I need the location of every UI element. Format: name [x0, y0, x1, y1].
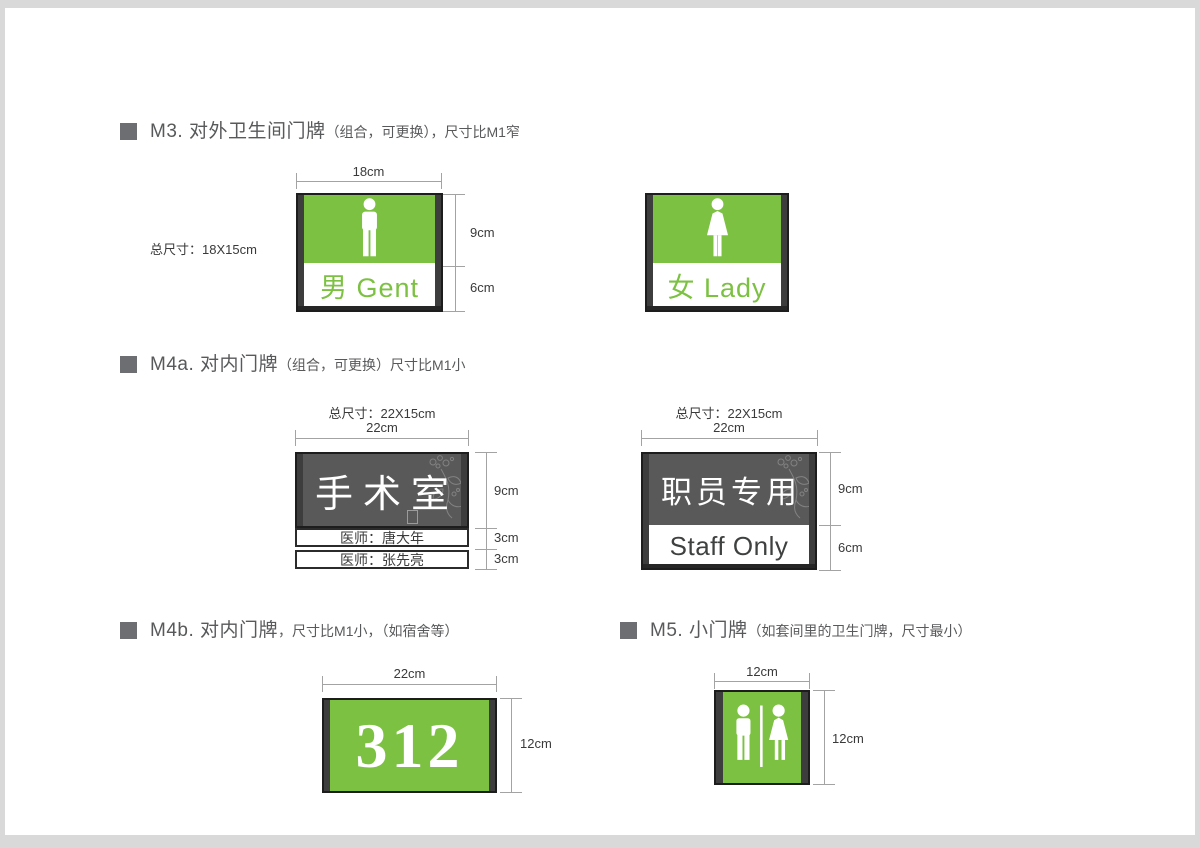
staff-band-text: Staff Only — [670, 531, 789, 562]
doctor-name-1: 医师：唐大年 — [340, 528, 424, 548]
dimension-tick — [443, 194, 465, 195]
m3-bullet-icon — [120, 123, 137, 140]
m4b-section-title: M4b. 对内门牌，尺寸比M1小，（如宿舍等） — [150, 620, 458, 643]
room-number-text: 312 — [356, 709, 464, 783]
small-sign-pictogram-panel — [723, 692, 801, 783]
dimension-tick — [813, 784, 835, 785]
m3-width-dim-label: 18cm — [296, 164, 441, 179]
sign-right-rail — [435, 195, 441, 310]
dimension-tick — [296, 173, 297, 189]
sign-right-rail — [809, 454, 815, 568]
doctor-name-slat: 医师：唐大年 — [295, 528, 469, 547]
dimension-line — [296, 181, 441, 182]
dimension-tick — [813, 690, 835, 691]
dimension-tick — [441, 173, 442, 189]
staff-sign-label-band: Staff Only — [649, 528, 809, 564]
sign-right-rail — [801, 692, 808, 783]
m4b-title-sub: ，尺寸比M1小，（如宿舍等） — [278, 623, 458, 639]
m4b-bullet-icon — [120, 622, 137, 639]
dimension-tick — [817, 430, 818, 446]
m4a-title-sub: （组合，可更换）尺寸比M1小 — [278, 357, 465, 373]
small-sign-height-dim-label: 12cm — [832, 731, 864, 746]
dimension-tick — [819, 452, 841, 453]
dimension-tick — [500, 698, 522, 699]
surgery-slat1-dim-label: 3cm — [494, 530, 519, 545]
dimension-line — [295, 438, 469, 439]
male-female-icon — [730, 704, 794, 771]
room-number-sign: 312 — [322, 698, 497, 793]
small-toilet-sign — [714, 690, 810, 785]
dimension-tick — [819, 525, 841, 526]
dimension-tick — [475, 569, 497, 570]
surgery-panel-face: 手术室 — [303, 454, 461, 526]
m5-bullet-icon — [620, 622, 637, 639]
male-toilet-sign: 男 Gent — [296, 193, 443, 312]
male-sign-pictogram-panel — [304, 195, 435, 263]
doctor-name-slat: 医师：张先亮 — [295, 550, 469, 569]
sign-right-rail — [489, 700, 495, 791]
sign-left-rail — [716, 692, 723, 783]
female-sign-label: 女 Lady — [667, 266, 766, 305]
signage-spec-sheet: M3. 对外卫生间门牌（组合，可更换），尺寸比M1窄 总尺寸：18X15cm 1… — [0, 0, 1200, 848]
m5-section-title: M5. 小门牌（如套间里的卫生门牌，尺寸最小） — [650, 620, 971, 643]
dimension-tick — [819, 570, 841, 571]
male-sign-label: 男 Gent — [320, 266, 419, 305]
m4b-title-main: M4b. 对内门牌 — [150, 620, 278, 641]
dimension-tick — [443, 311, 465, 312]
m5-title-sub: （如套间里的卫生门牌，尺寸最小） — [747, 623, 971, 639]
m3-section-title: M3. 对外卫生间门牌（组合，可更换），尺寸比M1窄 — [150, 121, 520, 144]
staff-width-dim-label: 22cm — [641, 420, 817, 435]
surgery-slat2-dim-label: 3cm — [494, 551, 519, 566]
dimension-line — [486, 452, 487, 569]
dimension-tick — [496, 676, 497, 692]
staff-band-dim-label: 6cm — [838, 540, 863, 555]
male-icon — [355, 198, 384, 260]
staff-panel-text: 职员专用 — [657, 467, 801, 512]
dimension-tick — [468, 430, 469, 446]
sign-right-rail — [781, 195, 787, 310]
m3-title-sub: （组合，可更换），尺寸比M1窄 — [325, 124, 519, 140]
surgery-sign-panel: 手术室 — [295, 452, 469, 528]
staff-only-sign: 职员专用 Staff Only — [641, 452, 817, 570]
m4a-section-title: M4a. 对内门牌（组合，可更换）尺寸比M1小 — [150, 354, 465, 377]
dimension-tick — [475, 452, 497, 453]
sign-right-rail — [461, 454, 467, 526]
staff-panel-dim-label: 9cm — [838, 481, 863, 496]
dimension-line — [830, 452, 831, 570]
room-width-dim-label: 22cm — [322, 666, 497, 681]
room-height-dim-label: 12cm — [520, 736, 552, 751]
sign-bottom-rail — [643, 564, 815, 568]
dimension-line — [824, 690, 825, 785]
dimension-tick — [809, 673, 810, 689]
surgery-panel-text: 手术室 — [305, 463, 459, 518]
m3-total-size-label: 总尺寸：18X15cm — [150, 239, 257, 258]
surgery-panel-dim-label: 9cm — [494, 483, 519, 498]
doctor-name-2: 医师：张先亮 — [340, 550, 424, 570]
room-number-panel: 312 — [330, 700, 489, 791]
dimension-line — [322, 684, 497, 685]
dimension-tick — [500, 792, 522, 793]
dimension-line — [641, 438, 817, 439]
female-sign-label-band: 女 Lady — [653, 265, 781, 306]
dimension-tick — [714, 673, 715, 689]
m3-upper-dim-label: 9cm — [470, 225, 495, 240]
surgery-width-dim-label: 22cm — [295, 420, 469, 435]
dimension-tick — [295, 430, 296, 446]
dimension-line — [455, 194, 456, 311]
female-sign-pictogram-panel — [653, 195, 781, 263]
male-sign-label-band: 男 Gent — [304, 265, 435, 306]
staff-panel-face: 职员专用 — [649, 454, 809, 525]
dimension-line — [511, 698, 512, 793]
dimension-tick — [322, 676, 323, 692]
sign-bottom-rail — [298, 306, 441, 310]
dimension-tick — [443, 266, 465, 267]
m3-title-main: M3. 对外卫生间门牌 — [150, 121, 325, 142]
dimension-tick — [475, 528, 497, 529]
m4a-title-main: M4a. 对内门牌 — [150, 354, 278, 375]
female-toilet-sign: 女 Lady — [645, 193, 789, 312]
dimension-tick — [475, 549, 497, 550]
sign-bottom-rail — [647, 306, 787, 310]
m5-title-main: M5. 小门牌 — [650, 620, 747, 641]
m3-lower-dim-label: 6cm — [470, 280, 495, 295]
m4a-bullet-icon — [120, 356, 137, 373]
female-icon — [701, 198, 734, 260]
small-sign-width-dim-label: 12cm — [714, 664, 810, 679]
dimension-tick — [641, 430, 642, 446]
dimension-line — [714, 681, 810, 682]
